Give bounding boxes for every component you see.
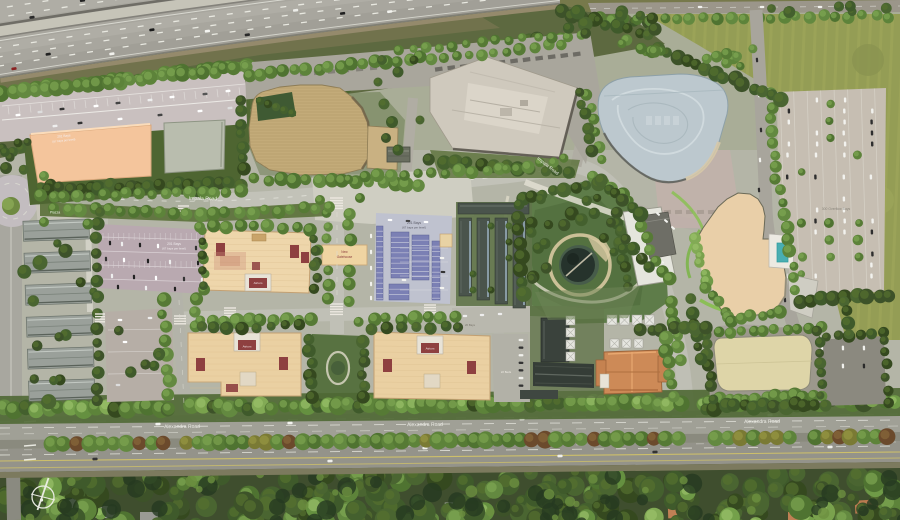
svg-text:Atrium: Atrium — [243, 345, 252, 349]
svg-text:(67 bays per level): (67 bays per level) — [402, 225, 426, 229]
svg-text:Piazza: Piazza — [50, 211, 60, 215]
svg-text:20 Bays: 20 Bays — [465, 323, 476, 327]
svg-text:Alexandra Road: Alexandra Road — [744, 419, 780, 425]
svg-text:(67 bays per level): (67 bays per level) — [162, 247, 186, 251]
svg-text:201 Bays: 201 Bays — [167, 242, 181, 246]
svg-text:Alexandra Road: Alexandra Road — [407, 422, 443, 428]
svg-text:201 Bays: 201 Bays — [407, 221, 421, 225]
svg-text:New: New — [341, 250, 348, 254]
svg-text:Impala Road: Impala Road — [189, 196, 218, 202]
svg-text:22 Beds: 22 Beds — [501, 370, 512, 374]
svg-text:Atrium: Atrium — [426, 347, 435, 351]
svg-text:Atrium: Atrium — [254, 281, 263, 285]
svg-text:300 Overflow Bays: 300 Overflow Bays — [822, 207, 851, 211]
svg-text:Alexandra Road: Alexandra Road — [164, 424, 200, 430]
svg-text:Gatehouse: Gatehouse — [337, 255, 353, 259]
